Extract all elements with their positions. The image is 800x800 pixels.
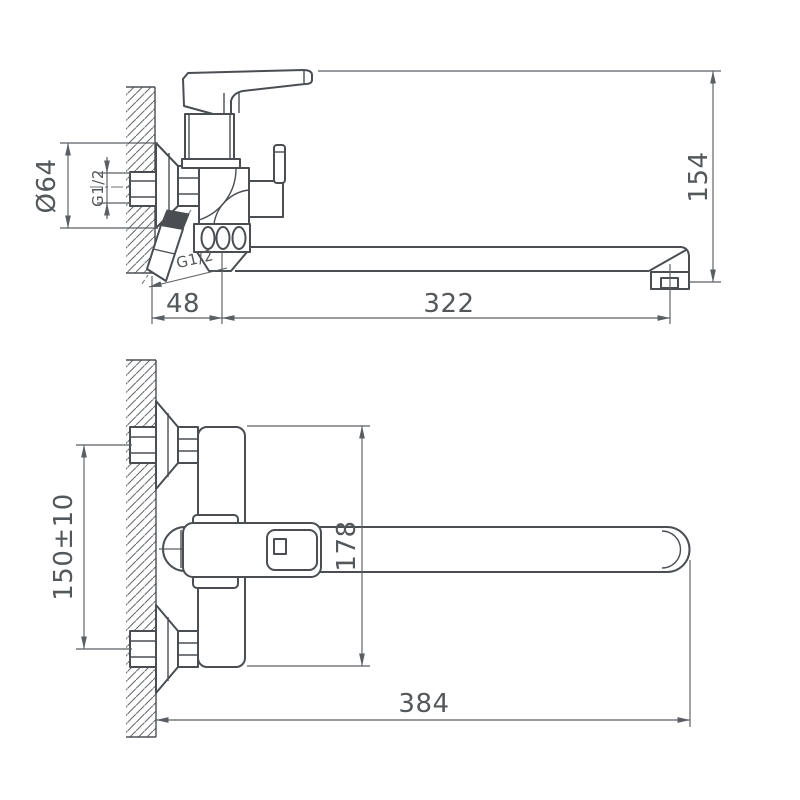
diverter-knob <box>249 145 285 217</box>
wall-section-front <box>126 360 156 737</box>
valve-body <box>199 168 249 224</box>
dim-label-wall-thread: G1/2 <box>89 169 107 207</box>
spout <box>235 247 689 289</box>
dim-label-body-length: 178 <box>332 520 362 571</box>
dim-label-flange-diameter: Ø64 <box>32 158 62 213</box>
faucet-technical-drawing: Ø64 G1/2 48 322 154 G1/2 <box>0 0 800 800</box>
side-view: Ø64 G1/2 48 322 154 G1/2 <box>32 70 721 324</box>
dim-label-spout-reach: 322 <box>423 289 474 319</box>
lever-handle-plan <box>183 523 321 577</box>
dim-label-wall-offset: 48 <box>166 289 200 319</box>
lever-handle <box>183 70 312 114</box>
front-view: 150±10 178 384 <box>49 360 690 737</box>
wall-eccentric <box>130 172 156 206</box>
dim-label-total-reach: 384 <box>398 689 449 719</box>
hex-adapter <box>178 166 199 206</box>
dim-label-height: 154 <box>684 151 714 202</box>
dim-label-inlet-spacing: 150±10 <box>49 493 79 601</box>
cartridge <box>182 114 240 168</box>
